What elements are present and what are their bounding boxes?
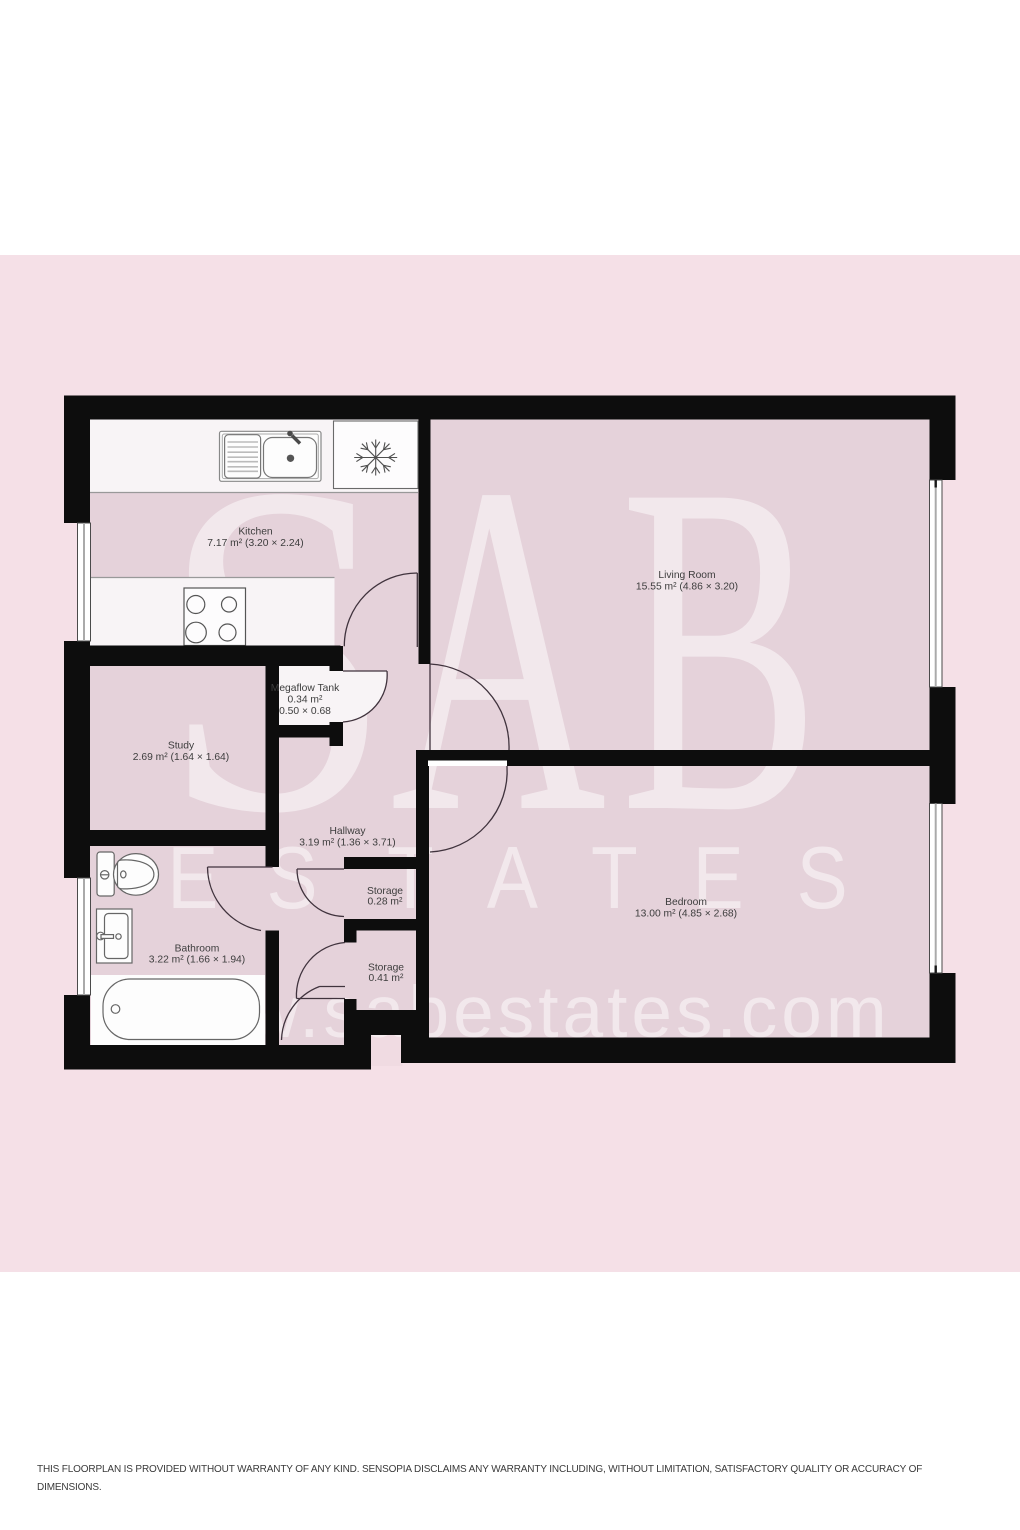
svg-text:0.28 m²: 0.28 m²	[368, 897, 403, 908]
svg-text:Living Room: Living Room	[658, 570, 715, 581]
svg-text:Storage: Storage	[368, 963, 404, 974]
svg-text:T: T	[591, 829, 638, 927]
svg-text:2.69 m² (1.64 × 1.64): 2.69 m² (1.64 × 1.64)	[133, 752, 229, 763]
svg-text:3.22 m² (1.66 × 1.94): 3.22 m² (1.66 × 1.94)	[149, 955, 245, 966]
svg-text:Hallway: Hallway	[329, 826, 366, 837]
svg-text:Bathroom: Bathroom	[175, 944, 220, 955]
svg-text:A: A	[487, 829, 538, 927]
svg-text:Kitchen: Kitchen	[238, 527, 273, 538]
svg-text:15.55 m² (4.86 × 3.20): 15.55 m² (4.86 × 3.20)	[636, 582, 738, 593]
svg-text:0.34 m²: 0.34 m²	[288, 695, 323, 706]
svg-text:13.00 m² (4.85 × 2.68): 13.00 m² (4.85 × 2.68)	[635, 909, 737, 920]
svg-text:S: S	[797, 829, 848, 927]
svg-text:3.19 m² (1.36 × 3.71): 3.19 m² (1.36 × 3.71)	[299, 838, 395, 849]
svg-text:Megaflow Tank: Megaflow Tank	[271, 683, 340, 694]
svg-text:0.50 × 0.68: 0.50 × 0.68	[279, 706, 331, 717]
svg-text:7.17 m² (3.20 × 2.24): 7.17 m² (3.20 × 2.24)	[207, 538, 303, 549]
svg-text:Storage: Storage	[367, 886, 403, 897]
svg-text:Study: Study	[168, 741, 195, 752]
svg-text:Bedroom: Bedroom	[665, 897, 707, 908]
svg-text:0.41 m²: 0.41 m²	[369, 973, 404, 984]
